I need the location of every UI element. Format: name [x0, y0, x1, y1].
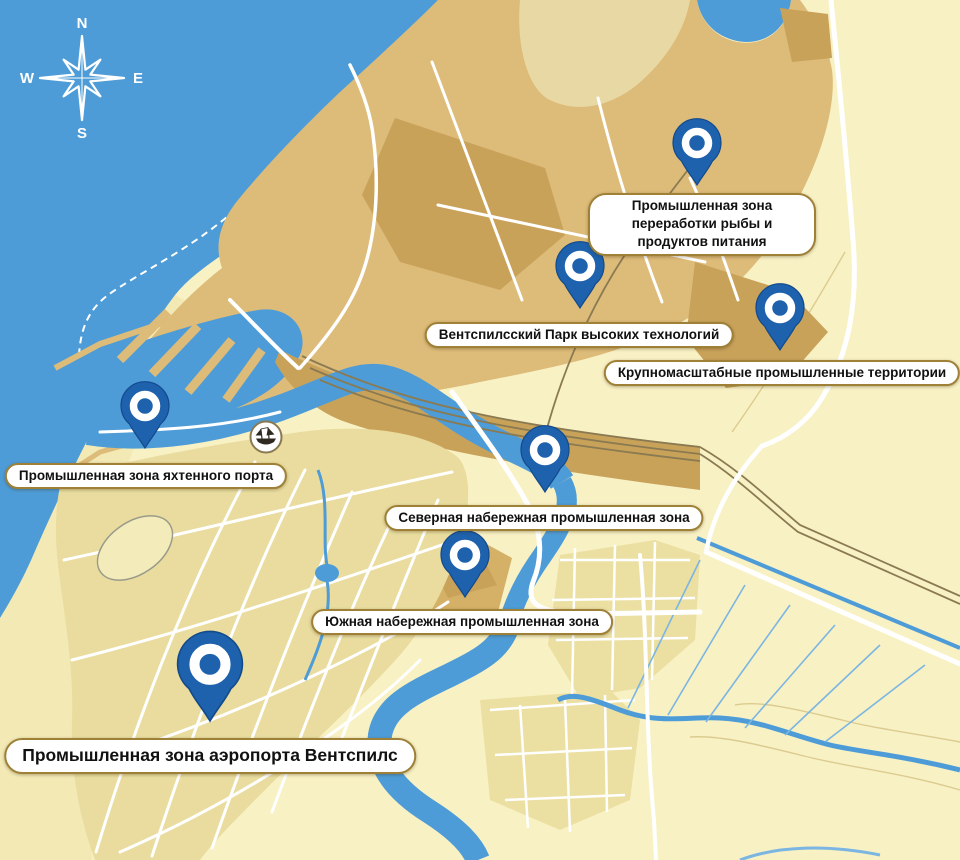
compass-e: E	[133, 70, 143, 87]
pond	[315, 564, 339, 582]
label-fish-processing: Промышленная зона переработки рыбы и про…	[588, 193, 816, 256]
label-north-embankment: Северная набережная промышленная зона	[384, 505, 703, 531]
map-canvas: N E S W	[0, 0, 960, 860]
compass-w: W	[20, 70, 35, 87]
label-large-scale-industry: Крупномасштабные промышленные территории	[604, 360, 960, 386]
label-south-embankment: Южная набережная промышленная зона	[311, 609, 613, 635]
label-yacht-port: Промышленная зона яхтенного порта	[5, 463, 287, 489]
compass-n: N	[77, 15, 88, 32]
sailing-ship-emblem-icon	[251, 422, 282, 453]
label-high-tech-park: Вентспилсский Парк высоких технологий	[425, 322, 734, 348]
compass-s: S	[77, 125, 87, 142]
ventspils-industrial-zones-map: N E S W Промышленная зона переработки ры…	[0, 0, 960, 860]
label-airport: Промышленная зона аэропорта Вентспилс	[4, 738, 416, 774]
